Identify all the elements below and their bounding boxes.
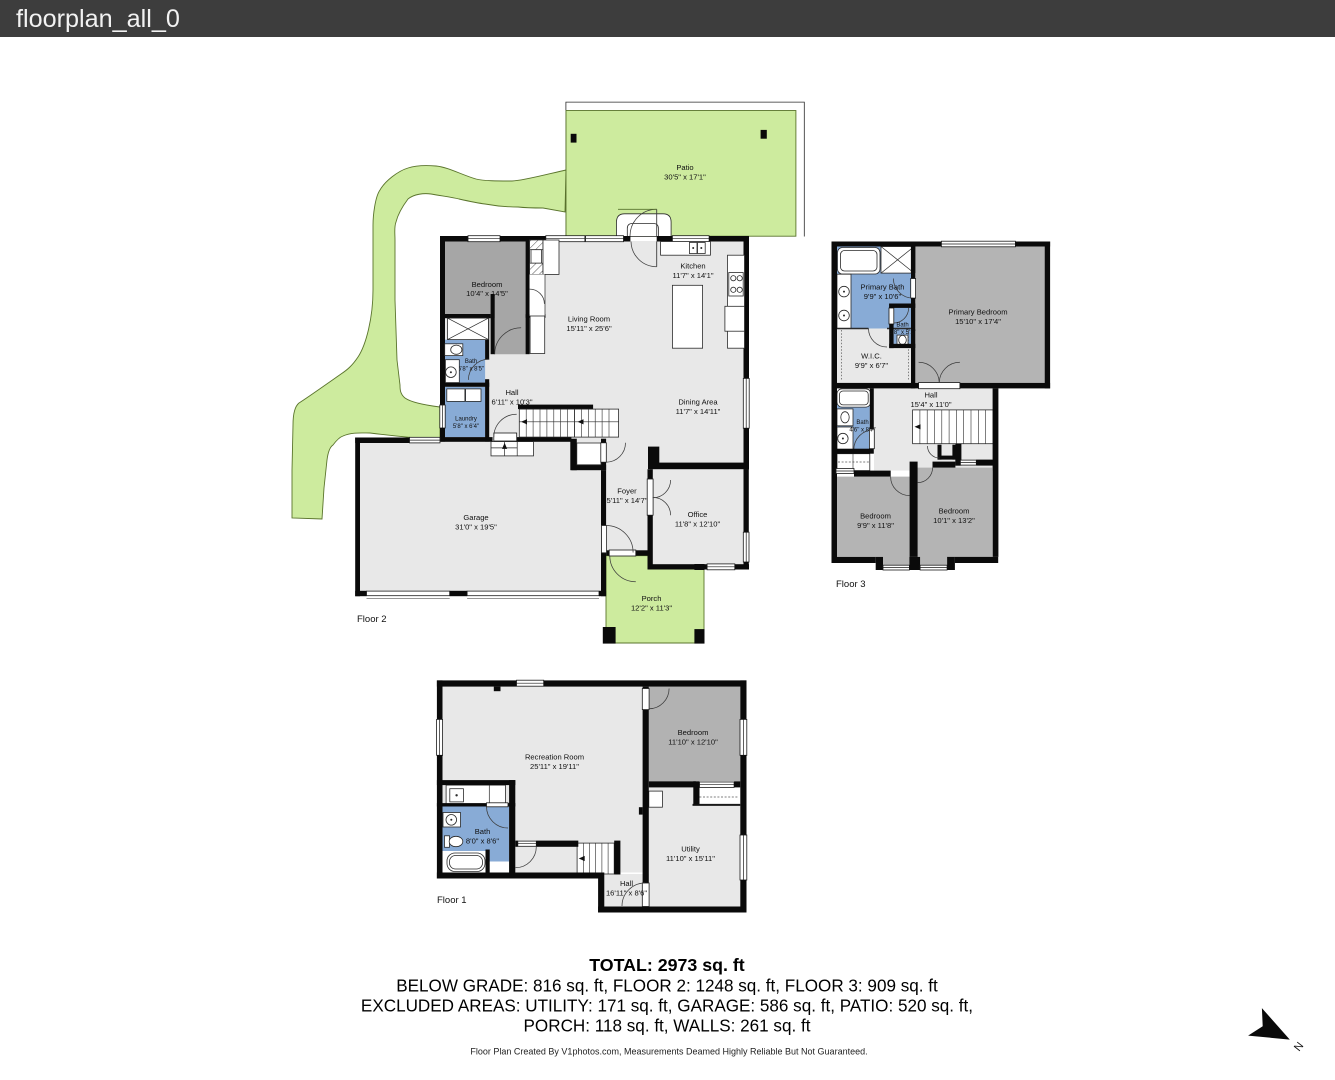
svg-text:11'7" x 14'11": 11'7" x 14'11" <box>676 407 721 416</box>
svg-text:16'11" x 8'6": 16'11" x 8'6" <box>606 889 647 898</box>
svg-text:BELOW GRADE: 816 sq. ft, FLOOR: BELOW GRADE: 816 sq. ft, FLOOR 2: 1248 s… <box>396 977 938 996</box>
svg-text:Hall: Hall <box>924 391 937 400</box>
svg-text:10'4" x 14'5": 10'4" x 14'5" <box>466 289 508 298</box>
svg-text:Floor 3: Floor 3 <box>836 579 866 590</box>
svg-text:11'7" x 14'1": 11'7" x 14'1" <box>672 271 713 280</box>
svg-text:W.I.C.: W.I.C. <box>861 352 882 361</box>
svg-text:Recreation Room: Recreation Room <box>525 753 584 762</box>
svg-text:3'8" x 5'1": 3'8" x 5'1" <box>889 330 915 336</box>
svg-text:TOTAL: 2973 sq. ft: TOTAL: 2973 sq. ft <box>589 955 745 975</box>
svg-text:PORCH: 118 sq. ft, WALLS: 261: PORCH: 118 sq. ft, WALLS: 261 sq. ft <box>524 1017 811 1036</box>
svg-text:Utility: Utility <box>681 845 700 854</box>
svg-text:Primary Bath: Primary Bath <box>861 283 905 292</box>
svg-text:Hall: Hall <box>505 388 518 397</box>
svg-text:Patio: Patio <box>676 163 693 172</box>
svg-text:Laundry: Laundry <box>455 417 477 423</box>
svg-text:Bedroom: Bedroom <box>860 512 891 521</box>
svg-text:Foyer: Foyer <box>617 487 637 496</box>
svg-text:11'8" x 12'10": 11'8" x 12'10" <box>675 520 721 529</box>
svg-text:5'11" x 14'7": 5'11" x 14'7" <box>606 496 647 505</box>
svg-text:15'4" x 11'0": 15'4" x 11'0" <box>910 400 951 409</box>
svg-text:Living Room: Living Room <box>568 315 610 324</box>
svg-text:Bath: Bath <box>856 420 868 426</box>
svg-text:25'11" x 19'11": 25'11" x 19'11" <box>530 762 579 771</box>
svg-text:10'1" x 13'2": 10'1" x 13'2" <box>933 516 975 525</box>
svg-text:Office: Office <box>688 510 708 519</box>
svg-text:Porch: Porch <box>642 594 662 603</box>
svg-text:12'2" x 11'3": 12'2" x 11'3" <box>631 604 672 613</box>
svg-text:6'11" x 10'3": 6'11" x 10'3" <box>491 398 532 407</box>
svg-text:Garage: Garage <box>463 513 488 522</box>
svg-text:Dining Area: Dining Area <box>678 398 718 407</box>
svg-text:Primary Bedroom: Primary Bedroom <box>948 308 1007 317</box>
svg-text:Bedroom: Bedroom <box>472 280 503 289</box>
svg-text:9'9" x 10'6": 9'9" x 10'6" <box>864 292 902 301</box>
svg-text:Bedroom: Bedroom <box>939 507 970 516</box>
svg-text:Floor 1: Floor 1 <box>437 895 467 906</box>
svg-text:5'8" x 6'4": 5'8" x 6'4" <box>453 424 479 430</box>
svg-text:Bedroom: Bedroom <box>678 728 709 737</box>
svg-text:Bath: Bath <box>896 323 908 329</box>
svg-text:4'6" x 8'7": 4'6" x 8'7" <box>849 428 875 434</box>
svg-text:8'0" x 8'6": 8'0" x 8'6" <box>466 837 500 846</box>
svg-text:Floor 2: Floor 2 <box>357 614 387 625</box>
svg-text:11'10" x 12'10": 11'10" x 12'10" <box>668 738 718 747</box>
svg-text:15'11" x 25'6": 15'11" x 25'6" <box>566 324 612 333</box>
svg-text:Kitchen: Kitchen <box>680 262 705 271</box>
svg-text:31'0" x 19'5": 31'0" x 19'5" <box>455 523 497 532</box>
svg-text:Hall: Hall <box>620 879 633 888</box>
svg-text:Bath: Bath <box>475 827 491 836</box>
svg-text:9'9" x 11'8": 9'9" x 11'8" <box>857 521 894 530</box>
svg-text:9'9" x 6'7": 9'9" x 6'7" <box>855 361 889 370</box>
svg-text:30'5" x 17'1": 30'5" x 17'1" <box>664 173 706 182</box>
svg-text:15'10" x 17'4": 15'10" x 17'4" <box>955 317 1001 326</box>
svg-text:EXCLUDED AREAS: UTILITY: 171 s: EXCLUDED AREAS: UTILITY: 171 sq. ft, GAR… <box>361 997 973 1016</box>
svg-text:11'10" x 15'11": 11'10" x 15'11" <box>666 854 715 863</box>
svg-text:floorplan_all_0: floorplan_all_0 <box>16 5 180 33</box>
svg-text:Floor Plan Created By V1photos: Floor Plan Created By V1photos.com, Meas… <box>470 1047 867 1057</box>
